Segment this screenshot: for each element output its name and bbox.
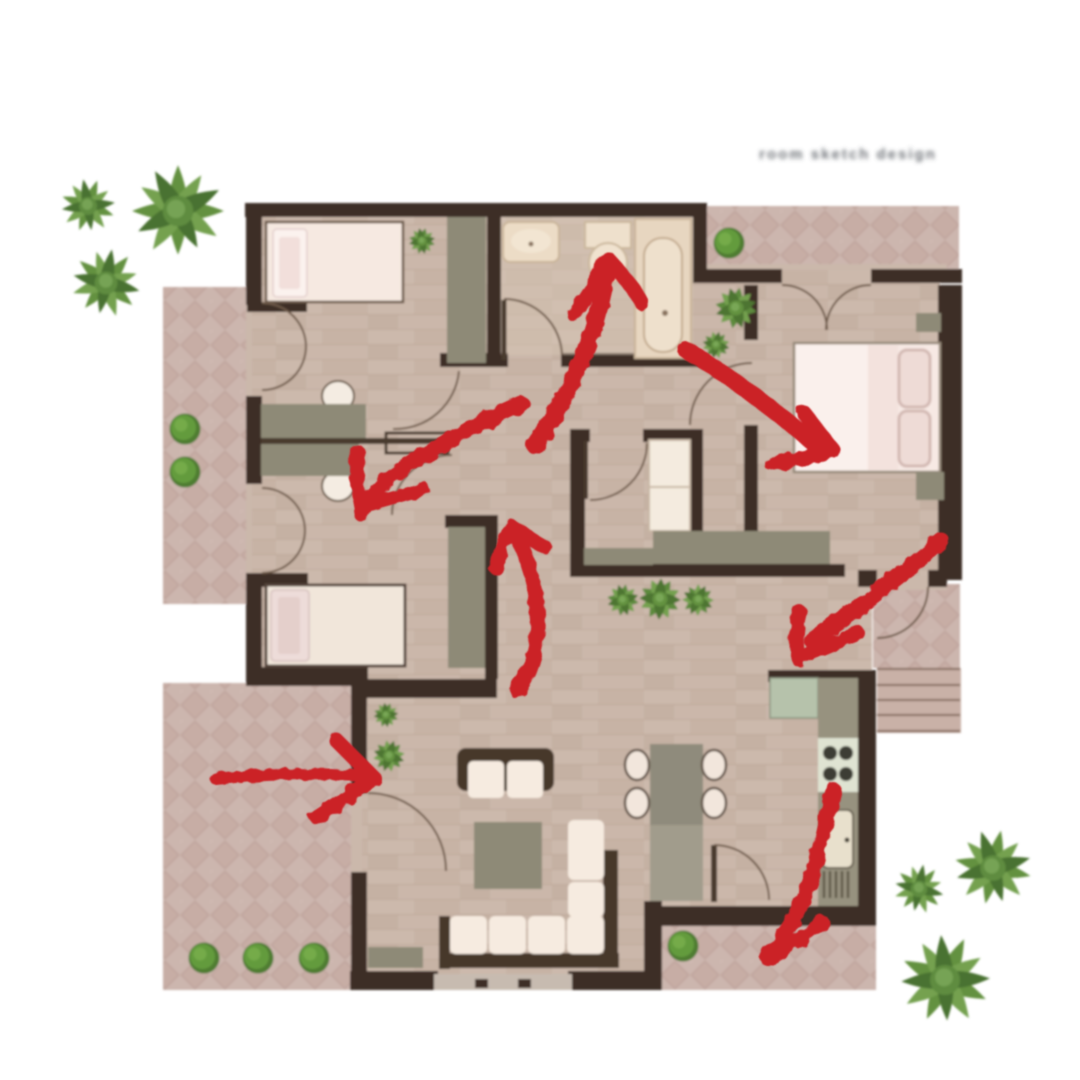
svg-text:room sketch design: room sketch design — [759, 146, 937, 163]
